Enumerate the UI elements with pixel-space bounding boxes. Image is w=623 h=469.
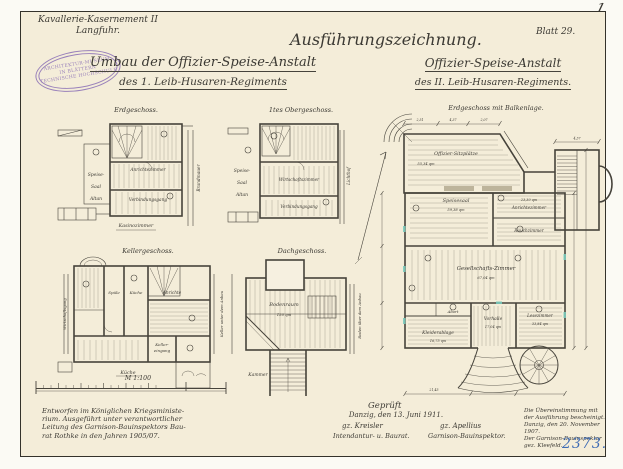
sheet-number: Blatt 29.	[536, 27, 575, 37]
room-label: Spüle	[108, 290, 120, 295]
plan-obergeschoss-title: 1tes Obergeschoss.	[269, 106, 333, 114]
room-label: Saal	[237, 180, 247, 186]
room-label: Brandmauer	[197, 163, 202, 192]
room-label: eingang	[154, 348, 171, 353]
left-title-line1-text: Umbau der Offizier-Speise-Anstalt	[90, 55, 316, 72]
approval-heading: Geprüft	[368, 401, 401, 411]
certification-line2: der Ausführung bescheinigt.	[524, 415, 614, 422]
plan-balkenlage-porch	[458, 346, 528, 393]
right-title-line2: des II. Leib-Husaren-Regiments.	[398, 77, 588, 88]
left-title-line2: des 1. Leib-Husaren-Regiments	[88, 76, 318, 88]
room-label: Boden über dem Anbau	[357, 293, 362, 340]
kasernement-line2: Langfuhr.	[38, 26, 158, 37]
room-label: Anrichtezimmer	[129, 168, 166, 173]
main-title: Ausführungszeichnung.	[290, 30, 470, 49]
inventory-number: 2373.	[562, 436, 607, 452]
certification-line3: Danzig, den 20. November 1907.	[524, 422, 614, 436]
room-label: Offizier-Sitzplätze	[434, 151, 478, 157]
left-title-line2-text: des 1. Leib-Husaren-Regiments	[119, 76, 287, 90]
kasernement-label: Kavallerie-Kasernement II Langfuhr.	[38, 15, 158, 37]
room-label: Anrichtezimmer	[511, 205, 547, 210]
scale-label: M 1:100	[124, 375, 151, 382]
approval-signature-left: gz. Kreisler	[342, 422, 383, 430]
room-label: Altan	[89, 196, 102, 202]
room-label: Keller-	[154, 342, 169, 347]
plan-kellergeschoss-joists	[78, 268, 208, 360]
room-label: Speisesaal	[443, 198, 470, 204]
plan-kellergeschoss-room-markers	[83, 275, 195, 351]
room-label: Keller unter dem Anbau	[219, 290, 224, 338]
plan-erdgeschoss-walls	[58, 124, 193, 230]
room-area: 16,75 qm	[430, 339, 446, 343]
room-area: 67,04 qm	[477, 276, 495, 280]
room-label: Speise-	[234, 168, 251, 174]
designer-note-line3: Leitung des Garnison-Bauinspektors Bau-	[42, 423, 186, 431]
scale-bar: M 1:100	[28, 370, 233, 400]
room-area: 55,34 qm	[417, 162, 435, 166]
designer-note-line4: rat Rothke in den Jahren 1905/07.	[42, 432, 186, 440]
room-label: Küche	[129, 290, 143, 295]
room-label: Rauchzimmer	[513, 228, 544, 233]
right-title-line2-text: des II. Leib-Husaren-Regiments.	[415, 77, 571, 90]
approval-date: Danzig, den 13. Juni 1911.	[336, 411, 456, 419]
room-label: Verbindungsgang	[280, 204, 318, 209]
room-label: Kasinozimmer	[118, 223, 154, 229]
room-area: 59,38 qm	[447, 208, 465, 212]
room-label: Abort	[447, 309, 459, 314]
room-label: Kleiderablage	[421, 330, 454, 336]
room-label: Verbindungsgang	[129, 198, 168, 203]
dimension-label: 4,37	[448, 118, 457, 122]
approval-title-left: Intendantur- u. Baurat.	[333, 432, 410, 440]
room-label: Gesellschafts-Zimmer	[457, 266, 516, 272]
room-label: Kammer	[247, 372, 268, 378]
room-label: Anrichte	[162, 290, 182, 295]
plan-balkenlage-spiral-stair	[520, 346, 558, 384]
certification-line1: Die Übereinstimmung mit	[524, 408, 614, 415]
kasernement-line1: Kavallerie-Kasernement II	[38, 15, 158, 26]
room-label: Wirtschaftszimmer	[279, 177, 320, 182]
designer-note: Entworfen im Königlichen Kriegsministe- …	[42, 407, 186, 440]
plan-dachgeschoss-title: Dachgeschoss.	[277, 247, 327, 255]
room-label: Bodenraum	[268, 302, 299, 308]
room-label: Speise-	[88, 172, 105, 178]
room-area: 150 qm	[277, 312, 292, 317]
plan-kellergeschoss-title: Kellergeschoss.	[121, 247, 173, 255]
right-title-line1: Offizier-Speise-Anstalt	[398, 56, 588, 70]
plan-balkenlage-vestibule	[524, 139, 612, 230]
room-label: Vorhalle	[484, 317, 503, 322]
room-label: Altan	[235, 192, 248, 198]
designer-note-line2: rium. Ausgeführt unter verantwortlicher	[42, 415, 186, 423]
room-area: 17,04 qm	[485, 325, 501, 329]
plan-erdgeschoss: Erdgeschoss.	[56, 104, 216, 250]
plan-balkenlage: Erdgeschoss mit Balkenlage. Offizier-Sit…	[368, 98, 614, 408]
dimension-label: 4,37	[572, 137, 581, 141]
plan-erdgeschoss-title: Erdgeschoss.	[113, 106, 158, 114]
room-label: Wirtschaftsgang	[62, 298, 67, 330]
plan-obergeschoss-room-markers	[245, 133, 329, 205]
room-label: Lesezimmer	[526, 313, 554, 318]
approval-title-right: Garnison-Bauinspektor.	[428, 432, 505, 440]
plan-balkenlage-room-markers	[409, 195, 542, 312]
plan-kellergeschoss-walls	[58, 257, 232, 388]
dimension-label: 2,51	[415, 118, 423, 122]
room-area: 33,84 qm	[532, 322, 548, 326]
dimension-label: 21,45	[428, 388, 438, 392]
approval-signature-right: gz. Apellius	[440, 422, 481, 430]
dimension-label: 2,07	[479, 118, 488, 122]
room-label: Saal	[91, 184, 101, 190]
scanned-drawing-sheet: 1 Kavallerie-Kasernement II Langfuhr. AR…	[0, 0, 623, 469]
right-title-line1-text: Offizier-Speise-Anstalt	[425, 56, 562, 72]
plan-erdgeschoss-room-markers	[93, 131, 173, 199]
designer-note-line1: Entworfen im Königlichen Kriegsministe-	[42, 407, 186, 415]
plan-obergeschoss-joists	[264, 126, 334, 216]
plan-obergeschoss-walls	[228, 124, 344, 224]
left-title-line1: Umbau der Offizier-Speise-Anstalt	[88, 55, 318, 70]
room-area: 23,30 qm	[520, 198, 537, 202]
plan-balkenlage-title: Erdgeschoss mit Balkenlage.	[447, 104, 544, 112]
